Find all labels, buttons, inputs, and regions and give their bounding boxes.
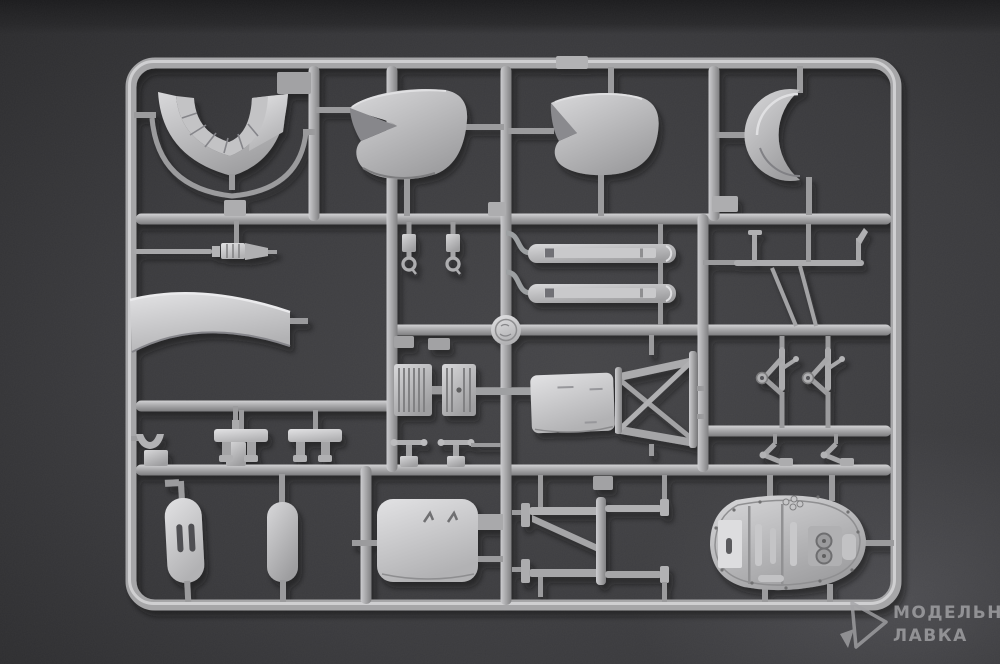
model-kit-sprue-photo: МОДЕЛЬНАЯ ЛАВКА: [0, 0, 1000, 664]
gate-tab: [224, 200, 246, 216]
gate-tab: [593, 476, 613, 490]
part-mold-stamp-disc: [491, 315, 521, 345]
gate-tab: [277, 72, 311, 94]
gate-tab: [712, 196, 738, 212]
gate-tab: [394, 336, 414, 348]
sprue-scene: МОДЕЛЬНАЯ ЛАВКА: [0, 0, 1000, 664]
watermark-line2: ЛАВКА: [893, 626, 968, 646]
watermark-line1: МОДЕЛЬНАЯ: [893, 603, 1000, 623]
gate-tab: [428, 338, 450, 350]
gate-tab: [556, 56, 588, 69]
part-flat-panel: [530, 373, 615, 434]
gate-tab: [488, 202, 506, 216]
